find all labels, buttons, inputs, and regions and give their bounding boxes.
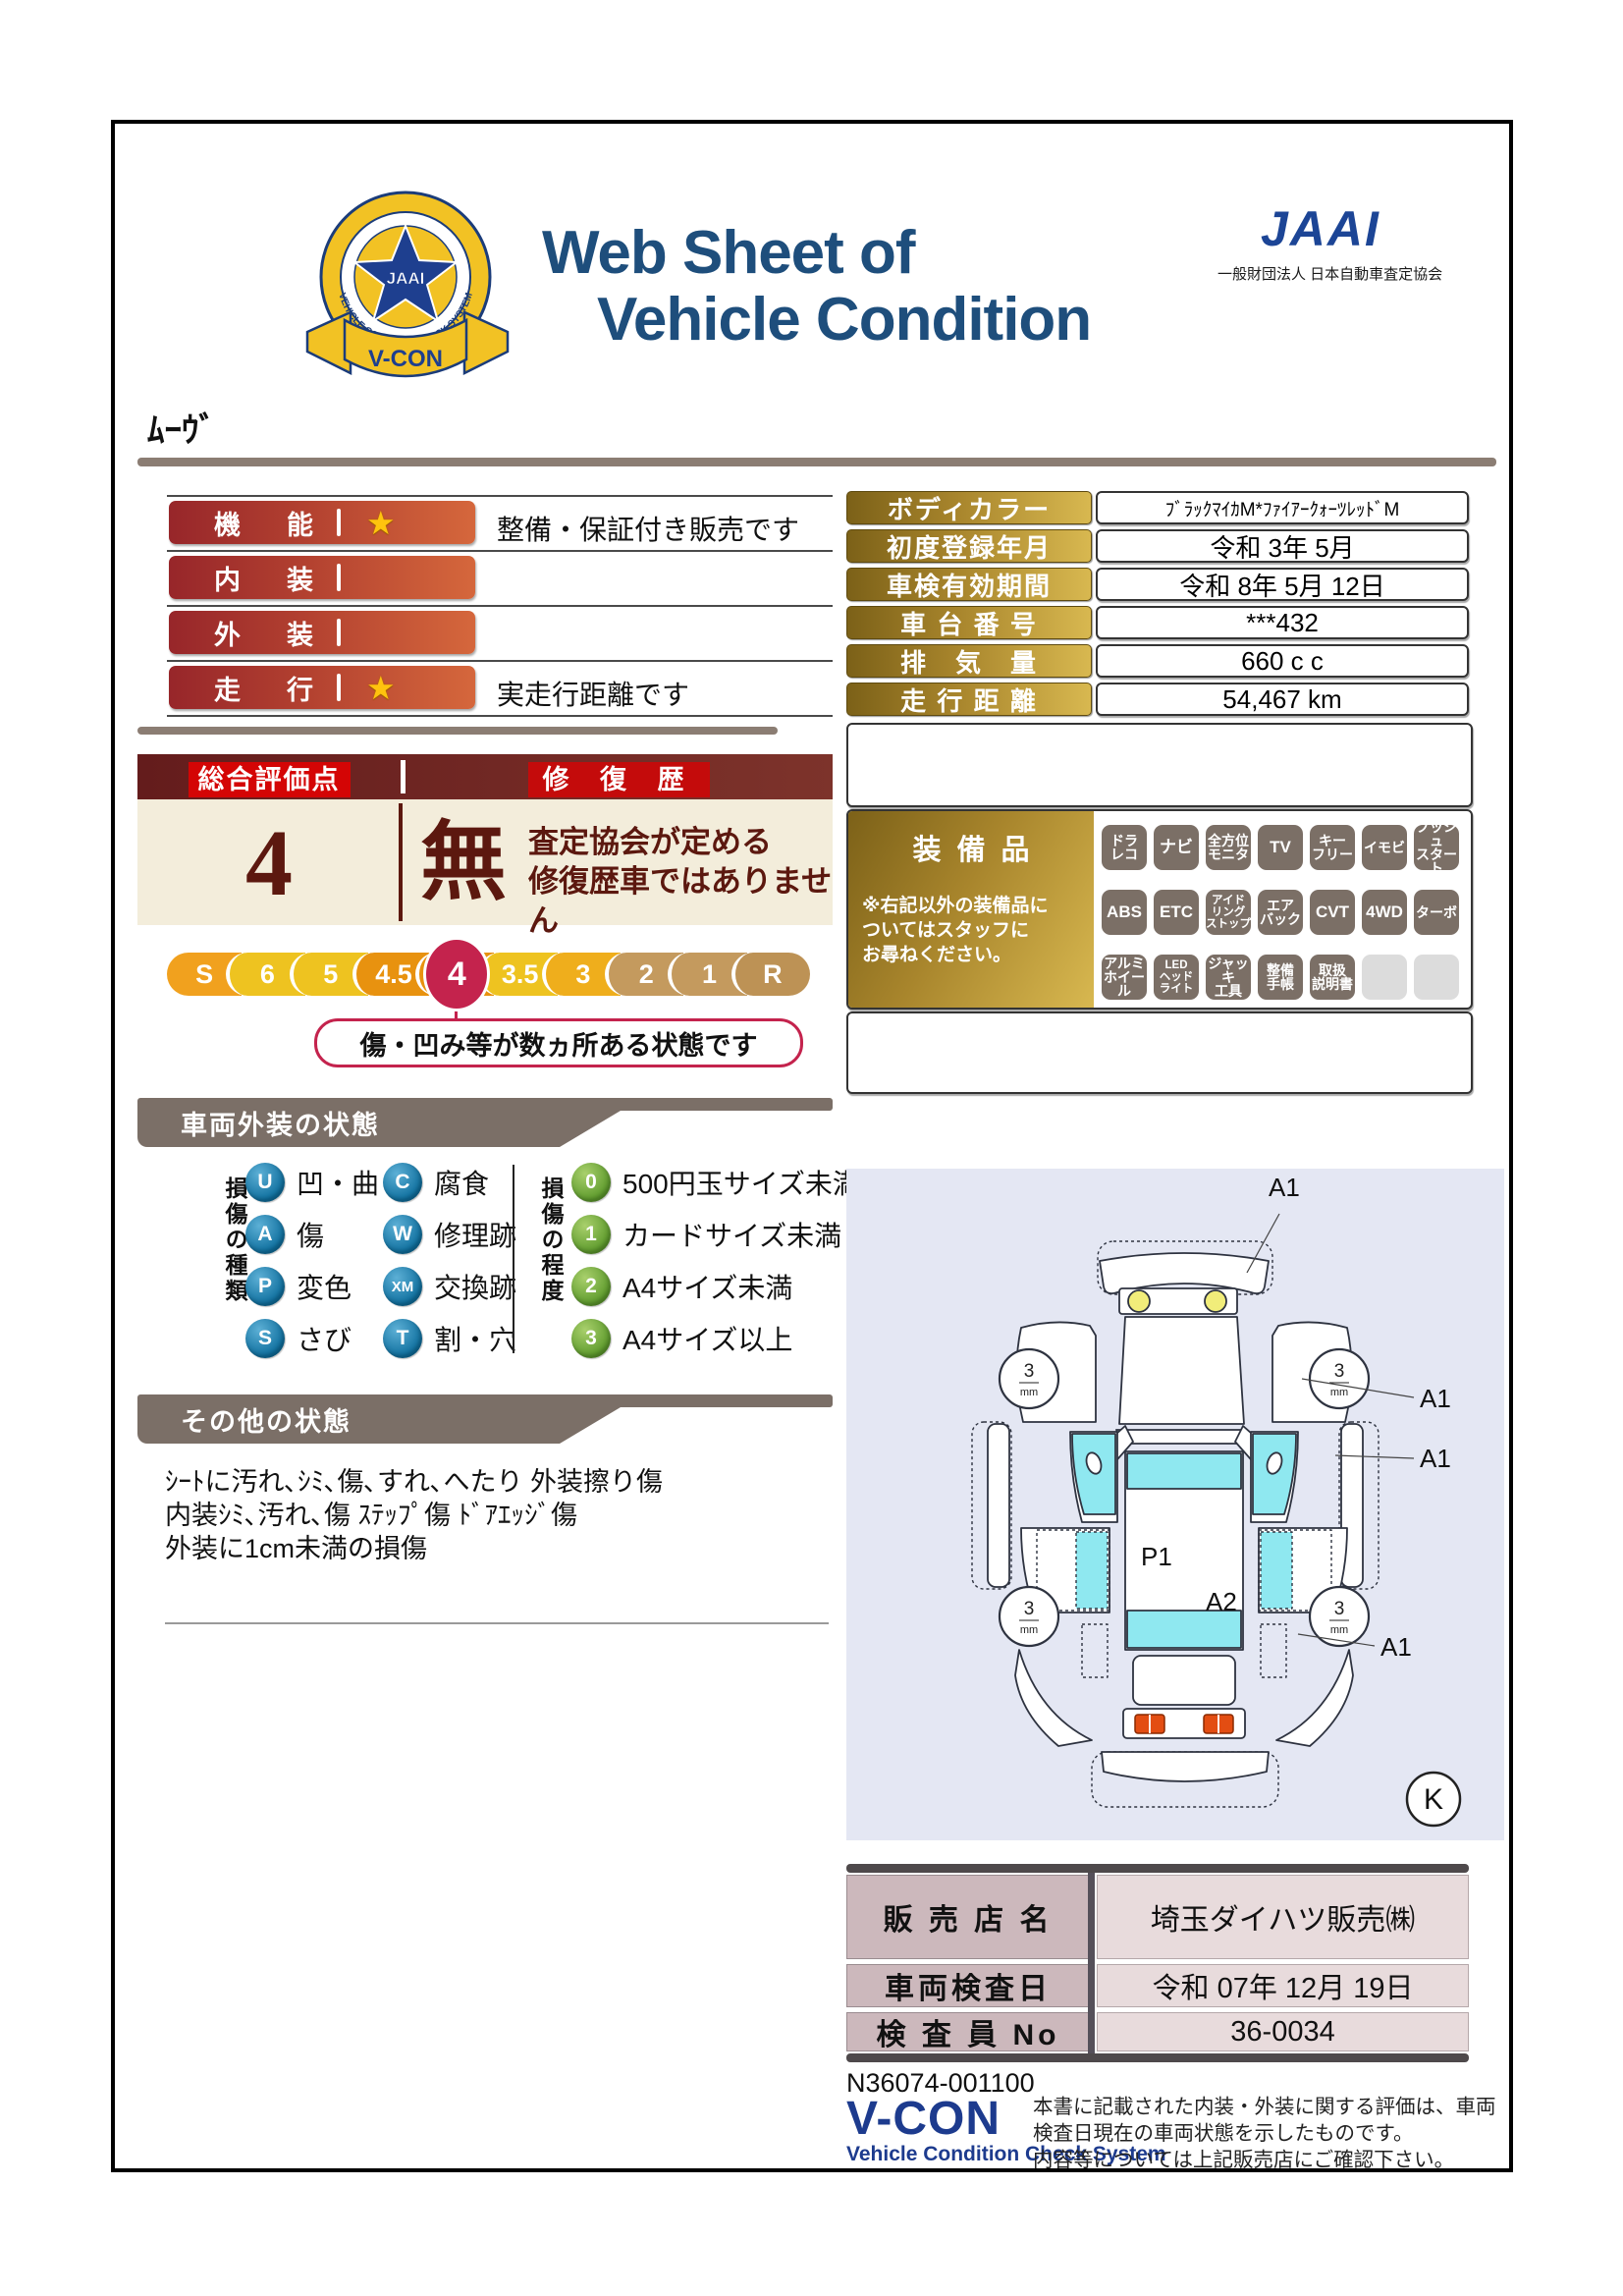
legend-divider — [513, 1165, 514, 1353]
divider — [165, 1622, 829, 1624]
svg-text:mm: mm — [1330, 1387, 1348, 1398]
badge-navi: ナビ — [1154, 825, 1199, 870]
badge-pushstart: プッシュ スタート — [1414, 825, 1459, 870]
svg-text:3: 3 — [1024, 1599, 1035, 1619]
damage-mark-p1: P1 — [1141, 1542, 1172, 1571]
badge-etc: ETC — [1154, 890, 1199, 935]
bar-divider — [337, 564, 341, 591]
repair-history-value: 無 — [420, 807, 507, 917]
equipment-section: 装備品 ※右記以外の装備品に ついてはスタッフに お尋ねください。 ドラ レコ … — [846, 809, 1473, 1010]
info-value: ﾌﾞﾗｯｸﾏｲｶM*ﾌｧｲｱｰｸｫｰﾂﾚｯﾄﾞM — [1096, 491, 1469, 524]
degree-label: カードサイズ未満 — [622, 1215, 841, 1254]
damage-callout-a1: A1 — [1380, 1632, 1412, 1662]
rating-bar-label: 機 能 — [214, 504, 323, 542]
info-value: 660 c c — [1096, 644, 1469, 678]
rating-bars-section: 機 能 ★ 整備・保証付き販売です 内 装 外 装 走 行 ★ 実走行距離です — [137, 487, 833, 727]
degree-label: 500円玉サイズ未満 — [622, 1163, 860, 1202]
type-p-icon: P — [245, 1267, 285, 1306]
divider — [167, 605, 833, 607]
divider-rule-mid — [137, 727, 778, 735]
damage-callout-a1: A1 — [1420, 1444, 1451, 1473]
score-body: 4 無 査定協会が定める 修復歴車ではありません — [137, 799, 833, 925]
svg-text:3: 3 — [1334, 1599, 1345, 1619]
inspection-date-label: 車両検査日 — [846, 1964, 1090, 2007]
svg-text:3: 3 — [1334, 1361, 1345, 1382]
dealer-value: 埼玉ダイハツ販売㈱ — [1097, 1875, 1469, 1959]
rating-bar-note: 整備・保証付き販売です — [497, 509, 799, 548]
type-label: 傷 — [297, 1215, 324, 1254]
damage-callout-a1: A1 — [1420, 1384, 1451, 1413]
star-icon: ★ — [366, 504, 396, 542]
info-value: 令和 8年 5月 12日 — [1096, 568, 1469, 601]
type-a-icon: A — [245, 1215, 285, 1254]
type-s-icon: S — [245, 1319, 285, 1358]
bar-divider — [337, 509, 341, 536]
degree-0-icon: 0 — [571, 1163, 611, 1202]
score-header-right: 修 復 歴 — [528, 762, 709, 797]
rating-bar-label: 走 行 — [214, 669, 323, 707]
scale-seg-r: R — [731, 953, 810, 996]
badge-keyfree: キー フリー — [1310, 825, 1355, 870]
other-state-banner: その他の状態 — [137, 1394, 833, 1444]
equipment-title: 装備品 — [848, 827, 1094, 868]
badge-manual: 取扱 説明書 — [1310, 955, 1355, 1000]
rating-bar-exterior: 外 装 — [169, 611, 475, 654]
vehicle-condition-sheet: JAAI VEHICLE CONDITION CHECK SYSTEM V-CO… — [0, 0, 1623, 2296]
info-label: ボディカラー — [846, 491, 1092, 524]
badge-turbo: ターボ — [1414, 890, 1459, 935]
divider — [167, 495, 833, 497]
table-column-divider — [1088, 1873, 1095, 2053]
svg-text:mm: mm — [1330, 1624, 1348, 1636]
degree-1-icon: 1 — [571, 1215, 611, 1254]
rating-bar-interior: 内 装 — [169, 556, 475, 599]
banner-title: その他の状態 — [181, 1400, 352, 1439]
degree-2-icon: 2 — [571, 1267, 611, 1306]
inspector-no-value: 36-0034 — [1097, 2012, 1469, 2051]
info-value: 54,467 km — [1096, 683, 1469, 716]
equipment-note: ※右記以外の装備品に ついてはスタッフに お尋ねください。 — [862, 894, 1048, 967]
divider — [167, 550, 833, 552]
disclaimer-note: 本書に記載された内装・外装に関する評価は、車両 検査日現在の車両状態を示したもの… — [1033, 2094, 1498, 2173]
banner-title: 車両外装の状態 — [181, 1104, 380, 1142]
damage-diagram-panel: 3 mm 3 mm 3 mm 3 mm P1 A2 — [846, 1169, 1504, 1840]
overall-score-value: 4 — [137, 799, 401, 925]
score-callout: 傷・凹み等が数ヵ所ある状態です — [314, 1018, 803, 1067]
divider — [167, 660, 833, 662]
badge-dorareko: ドラ レコ — [1102, 825, 1147, 870]
badge-servicebook: 整備 手帳 — [1258, 955, 1303, 1000]
badge-cvt: CVT — [1310, 890, 1355, 935]
badge-jacktools: ジャッキ 工具 — [1206, 955, 1251, 1000]
bar-divider — [337, 674, 341, 701]
svg-text:mm: mm — [1020, 1387, 1038, 1398]
type-label: 交換跡 — [434, 1267, 516, 1306]
info-label: 初度登録年月 — [846, 529, 1092, 563]
badge-tv: TV — [1258, 825, 1303, 870]
table-frame-bottom — [846, 2053, 1469, 2062]
body-divider — [399, 803, 403, 921]
badge-immobilizer: イモビ — [1362, 825, 1407, 870]
score-header-left: 総合評価点 — [189, 762, 351, 797]
other-state-text: ｼｰﾄに汚れ､ｼﾐ､傷､すれ､へたり 外装擦り傷 内装ｼﾐ､汚れ､傷 ｽﾃｯﾌﾟ… — [165, 1465, 663, 1565]
dealer-label: 販 売 店 名 — [846, 1875, 1090, 1959]
degree-3-icon: 3 — [571, 1319, 611, 1358]
bar-divider — [337, 619, 341, 646]
type-label: 腐食 — [434, 1163, 489, 1202]
info-value: 令和 3年 5月 — [1096, 529, 1469, 563]
page-title-line2: Vehicle Condition — [597, 285, 1091, 355]
empty-note-box — [846, 1011, 1473, 1094]
badge-alloywheel: アルミ ホイール — [1102, 955, 1147, 1000]
info-value: ***432 — [1096, 606, 1469, 639]
rating-bar-label: 外 装 — [214, 614, 323, 652]
repair-history-note: 査定協会が定める 修復歴車ではありません — [528, 823, 833, 941]
type-xm-icon: XM — [383, 1267, 422, 1306]
info-label: 車検有効期間 — [846, 568, 1092, 601]
scale-seg-4-selected: 4 — [415, 953, 494, 996]
inspector-no-label: 検 査 員 No — [846, 2012, 1090, 2051]
page-title-line1: Web Sheet of — [542, 218, 915, 288]
info-label: 排 気 量 — [846, 644, 1092, 678]
svg-text:mm: mm — [1020, 1624, 1038, 1636]
exterior-state-banner: 車両外装の状態 — [137, 1098, 833, 1147]
emblem-star-text: JAAI — [387, 269, 425, 288]
rating-bar-note: 実走行距離です — [497, 674, 689, 713]
type-label: 凹・曲 — [297, 1163, 379, 1202]
type-label: 変色 — [297, 1267, 352, 1306]
type-label: 修理跡 — [434, 1215, 516, 1254]
inspector-stamp-k: K — [1424, 1783, 1443, 1816]
svg-text:3: 3 — [1024, 1361, 1035, 1382]
selected-score-badge: 4 — [423, 937, 490, 1011]
empty-note-box — [846, 723, 1473, 807]
divider-rule-top — [137, 458, 1496, 466]
vcon-logo: V-CON — [846, 2092, 1001, 2146]
equipment-gold-label: 装備品 ※右記以外の装備品に ついてはスタッフに お尋ねください。 — [848, 811, 1094, 1008]
badge-abs: ABS — [1102, 890, 1147, 935]
score-header: 総合評価点 修 復 歴 — [137, 754, 833, 799]
car-diagram: 3 mm 3 mm 3 mm 3 mm P1 A2 — [846, 1169, 1504, 1840]
info-label: 車 台 番 号 — [846, 606, 1092, 639]
star-icon: ★ — [366, 669, 396, 707]
badge-monitor: 全方位 モニタ — [1206, 825, 1251, 870]
vcon-emblem-icon: JAAI VEHICLE CONDITION CHECK SYSTEM V-CO… — [290, 187, 525, 393]
info-label: 走 行 距 離 — [846, 683, 1092, 716]
badge-empty — [1362, 955, 1407, 1000]
damage-legend: 損傷の種類 U 凹・曲 A 傷 P 変色 S さび C 腐食 W 修理跡 XM … — [137, 1159, 833, 1361]
equipment-badges: ドラ レコ ナビ 全方位 モニタ TV キー フリー イモビ プッシュ スタート… — [1102, 811, 1467, 1008]
type-label: 割・穴 — [434, 1319, 516, 1358]
jaai-logo: JAAI — [1261, 200, 1380, 257]
overall-score-box: 総合評価点 修 復 歴 4 無 査定協会が定める 修復歴車ではありません — [137, 754, 833, 925]
rating-bar-mileage: 走 行 ★ — [169, 666, 475, 709]
type-label: さび — [297, 1319, 352, 1358]
damage-degree-label: 損傷の程度 — [534, 1176, 568, 1304]
type-w-icon: W — [383, 1215, 422, 1254]
damage-callout-a1: A1 — [1269, 1173, 1300, 1202]
badge-empty — [1414, 955, 1459, 1000]
rating-bar-function: 機 能 ★ — [169, 501, 475, 544]
badge-ledheadlight: LED ヘッド ライト — [1154, 955, 1199, 1000]
divider — [167, 715, 833, 717]
emblem-ribbon-text: V-CON — [368, 346, 443, 372]
degree-label: A4サイズ以上 — [622, 1319, 792, 1358]
damage-mark-a2: A2 — [1206, 1587, 1237, 1616]
type-t-icon: T — [383, 1319, 422, 1358]
type-u-icon: U — [245, 1163, 285, 1202]
degree-label: A4サイズ未満 — [622, 1267, 792, 1306]
badge-4wd: 4WD — [1362, 890, 1407, 935]
inspection-date-value: 令和 07年 12月 19日 — [1097, 1964, 1469, 2007]
jaai-subtitle: 一般財団法人 日本自動車査定協会 — [1217, 263, 1442, 284]
badge-idlingstop: アイド リング ストップ — [1206, 890, 1251, 935]
score-scale: S 6 5 4.5 4 3.5 3 2 1 R — [167, 953, 810, 996]
table-frame-top — [846, 1864, 1469, 1873]
vehicle-name: ﾑｰｳﾞ — [147, 403, 216, 453]
badge-airbag: エア バック — [1258, 890, 1303, 935]
type-c-icon: C — [383, 1163, 422, 1202]
rating-bar-label: 内 装 — [214, 559, 323, 597]
